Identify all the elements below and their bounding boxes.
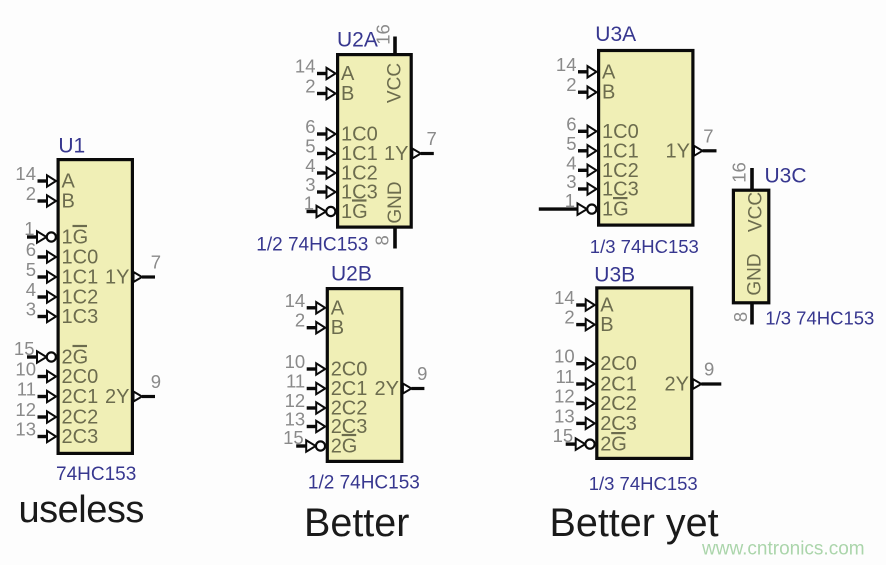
svg-text:Better: Better: [304, 501, 409, 545]
svg-text:11: 11: [555, 366, 574, 387]
svg-text:2Y: 2Y: [665, 374, 689, 396]
svg-text:6: 6: [566, 113, 576, 134]
svg-text:7: 7: [703, 125, 713, 146]
svg-text:A: A: [602, 61, 616, 83]
svg-text:12: 12: [15, 399, 36, 420]
svg-text:5: 5: [26, 259, 36, 280]
svg-text:1/3 74HC153: 1/3 74HC153: [589, 473, 698, 494]
svg-text:9: 9: [704, 359, 714, 380]
svg-text:2: 2: [305, 76, 315, 97]
svg-text:4: 4: [26, 279, 36, 300]
svg-text:16: 16: [373, 24, 394, 45]
svg-text:4: 4: [305, 155, 315, 176]
svg-text:74HC153: 74HC153: [56, 464, 136, 485]
svg-text:2Y: 2Y: [105, 386, 129, 408]
svg-text:B: B: [600, 314, 613, 336]
svg-text:16: 16: [729, 162, 750, 183]
svg-text:2G: 2G: [600, 434, 627, 456]
svg-text:1/3 74HC153: 1/3 74HC153: [590, 236, 699, 257]
svg-text:14: 14: [295, 56, 316, 77]
svg-text:GND: GND: [745, 253, 766, 295]
svg-text:11: 11: [17, 379, 36, 400]
svg-text:14: 14: [556, 54, 577, 75]
svg-text:U2B: U2B: [331, 263, 372, 286]
svg-text:1C0: 1C0: [62, 247, 99, 269]
svg-text:2C0: 2C0: [62, 366, 99, 388]
svg-text:14: 14: [285, 290, 306, 311]
svg-text:2: 2: [564, 307, 574, 328]
svg-text:2Y: 2Y: [375, 378, 399, 400]
svg-text:2C3: 2C3: [62, 426, 99, 448]
svg-text:9: 9: [417, 363, 427, 384]
svg-text:1C3: 1C3: [62, 306, 99, 328]
svg-text:2C2: 2C2: [600, 393, 637, 415]
svg-text:6: 6: [26, 239, 36, 260]
svg-text:10: 10: [15, 359, 36, 380]
svg-text:5: 5: [566, 133, 576, 154]
svg-text:2C1: 2C1: [62, 386, 99, 408]
svg-text:3: 3: [26, 299, 36, 320]
svg-text:1C1: 1C1: [62, 267, 99, 289]
svg-text:U1: U1: [58, 135, 85, 158]
svg-text:VCC: VCC: [746, 192, 767, 232]
svg-text:2C3: 2C3: [600, 413, 637, 435]
svg-text:14: 14: [15, 163, 36, 184]
svg-text:U3C: U3C: [765, 165, 807, 188]
svg-text:1Y: 1Y: [105, 267, 129, 289]
svg-text:1/3 74HC153: 1/3 74HC153: [765, 308, 874, 329]
svg-text:A: A: [331, 297, 345, 319]
svg-text:1G: 1G: [341, 201, 368, 223]
svg-text:B: B: [62, 191, 75, 213]
svg-text:3: 3: [566, 171, 576, 192]
svg-text:1/2 74HC153: 1/2 74HC153: [256, 234, 368, 255]
svg-text:2: 2: [26, 183, 36, 204]
svg-text:12: 12: [554, 386, 575, 407]
svg-text:U3B: U3B: [594, 264, 635, 287]
svg-text:6: 6: [305, 116, 315, 137]
svg-text:1Y: 1Y: [666, 140, 690, 162]
svg-text:A: A: [62, 171, 76, 193]
svg-text:10: 10: [285, 351, 306, 372]
svg-text:11: 11: [286, 371, 305, 392]
svg-text:2: 2: [295, 310, 305, 331]
svg-text:B: B: [331, 317, 344, 339]
svg-text:www.cntronics.com: www.cntronics.com: [701, 539, 865, 560]
svg-text:8: 8: [730, 312, 751, 322]
svg-text:GND: GND: [385, 181, 406, 223]
svg-text:Better yet: Better yet: [550, 501, 719, 545]
svg-text:1/2 74HC153: 1/2 74HC153: [308, 473, 420, 494]
svg-text:2C0: 2C0: [600, 353, 637, 375]
svg-text:7: 7: [427, 128, 437, 149]
svg-text:1G: 1G: [62, 227, 89, 249]
svg-text:5: 5: [305, 136, 315, 157]
svg-text:VCC: VCC: [385, 63, 406, 103]
svg-text:14: 14: [554, 287, 575, 308]
svg-text:1Y: 1Y: [384, 143, 408, 165]
svg-text:1G: 1G: [602, 199, 629, 221]
svg-text:B: B: [341, 83, 354, 105]
svg-text:U3A: U3A: [595, 23, 636, 46]
svg-text:7: 7: [151, 252, 161, 273]
svg-text:8: 8: [372, 235, 393, 245]
svg-text:A: A: [341, 63, 355, 85]
svg-text:2G: 2G: [331, 436, 358, 458]
svg-text:useless: useless: [19, 489, 144, 531]
svg-text:2: 2: [566, 74, 576, 95]
svg-text:13: 13: [15, 419, 36, 440]
svg-text:B: B: [602, 82, 615, 104]
svg-text:9: 9: [151, 371, 161, 392]
svg-text:10: 10: [554, 346, 575, 367]
svg-text:13: 13: [554, 405, 575, 426]
